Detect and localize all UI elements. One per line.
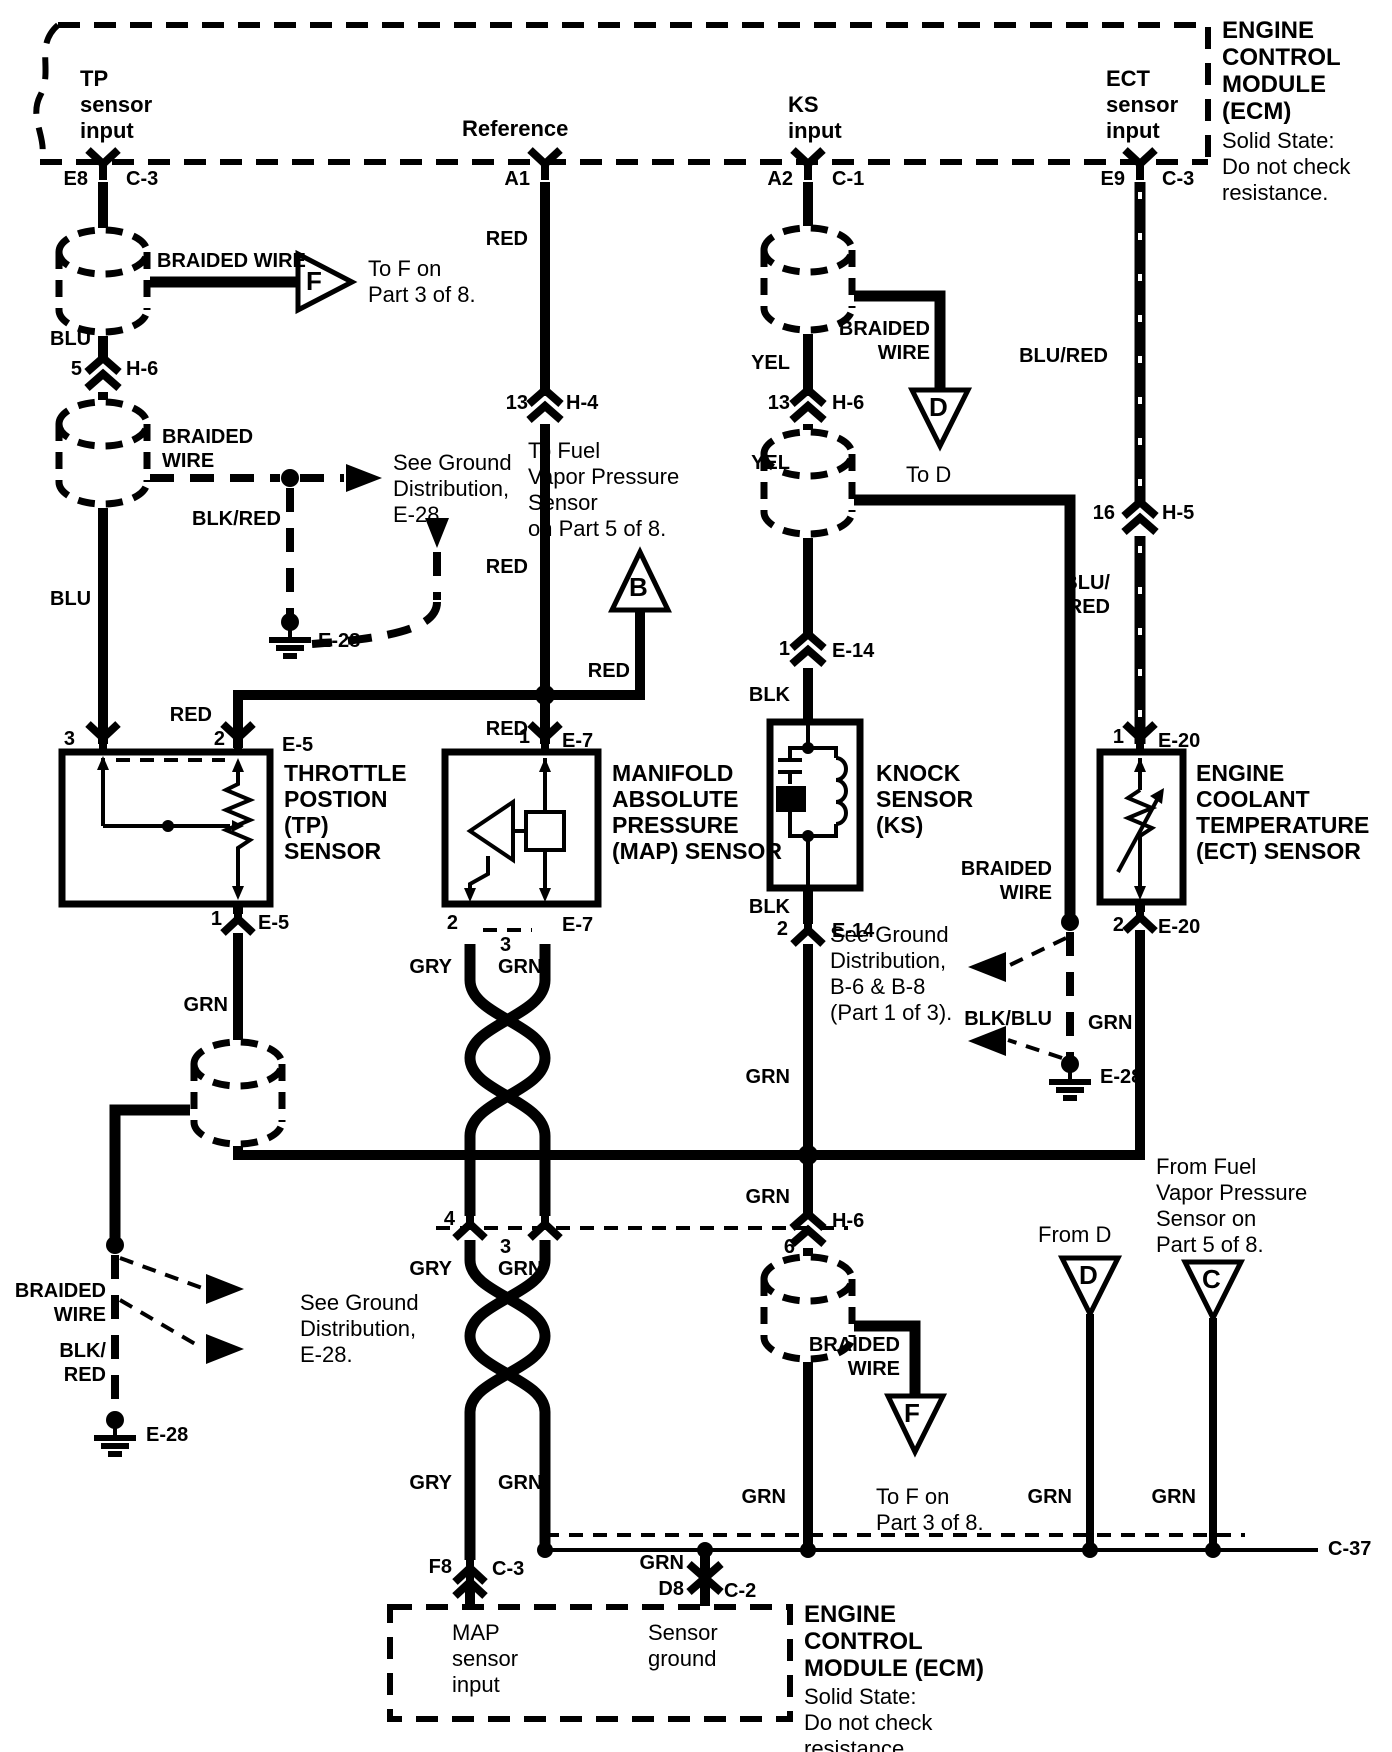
triangle-f-letter: F xyxy=(306,266,322,297)
gry-label-2: GRY xyxy=(409,1258,452,1282)
map-title: MANIFOLD ABSOLUTE PRESSURE (MAP) SENSOR xyxy=(612,760,782,864)
grn-label-9: GRN xyxy=(640,1552,684,1576)
ect-title: ENGINE COOLANT TEMPERATURE (ECT) SENSOR xyxy=(1196,760,1369,864)
grn-label-5: GRN xyxy=(498,1472,542,1496)
red-label-tp: RED xyxy=(170,704,212,728)
ks-input-label: KS input xyxy=(788,92,842,144)
to-d-note: To D xyxy=(906,462,951,488)
tp-sensor-box xyxy=(62,724,270,904)
blk-red-label-1: BLK/RED xyxy=(192,508,281,532)
e7-label-bottom: E-7 xyxy=(562,914,593,938)
ref-arrow xyxy=(206,1274,244,1304)
blk-label-1: BLK xyxy=(749,684,790,708)
reference-label: Reference xyxy=(462,116,568,142)
yel-label-1: YEL xyxy=(751,352,790,376)
e20-label-top: E-20 xyxy=(1158,730,1200,754)
ecm-note: Solid State: Do not check resistance. xyxy=(1222,128,1350,206)
e28-label-c: E-28 xyxy=(146,1424,188,1448)
ks-title: KNOCK SENSOR (KS) xyxy=(876,760,973,838)
blk-blu-label: BLK/BLU xyxy=(964,1008,1052,1032)
h5-label: H-5 xyxy=(1162,502,1194,526)
see-ground-note-1: See Ground Distribution, E-28. xyxy=(393,450,512,528)
blu-label-2: BLU xyxy=(50,588,91,612)
e28-label-b: E-28 xyxy=(1100,1066,1142,1090)
pin-e9-label: E9 xyxy=(1101,168,1125,192)
pin-2-ks-label: 2 xyxy=(777,918,788,942)
ecm-title: ENGINE CONTROL MODULE (ECM) xyxy=(1222,18,1341,126)
ref-arrow xyxy=(968,952,1006,982)
tp-input-label: TP sensor input xyxy=(80,66,152,144)
blu-red-label-1: BLU/RED xyxy=(1019,345,1108,369)
ecm-top-box xyxy=(36,25,1208,162)
pin-e8-label: E8 xyxy=(64,168,88,192)
amp-icon xyxy=(470,802,513,860)
tp-braided-drain xyxy=(94,1110,244,1454)
see-ground-note-3: See Ground Distribution, E-28. xyxy=(300,1290,419,1368)
pin-3-map-label: 3 xyxy=(500,934,511,958)
ect-input-label: ECT sensor input xyxy=(1106,66,1178,144)
conn-c1-label: C-1 xyxy=(832,168,864,192)
pin-2-tp-label: 2 xyxy=(214,728,225,752)
grn-label-7: GRN xyxy=(1028,1486,1072,1510)
blk-red-label-2: BLK/ RED xyxy=(59,1340,106,1387)
pin-a1-label: A1 xyxy=(504,168,530,192)
to-f-note-1: To F on Part 3 of 8. xyxy=(368,256,476,308)
pin-1-ks-label: 1 xyxy=(779,638,790,662)
pin-3b-label: 3 xyxy=(500,1236,511,1260)
c3-label-bottom: C-3 xyxy=(492,1558,524,1582)
blk-label-2: BLK xyxy=(749,896,790,920)
conn-c3-label: C-3 xyxy=(126,168,158,192)
e5-label-bottom: E-5 xyxy=(258,912,289,936)
gry-label-1: GRY xyxy=(409,956,452,980)
braided-wire-label-5: BRAIDED WIRE xyxy=(15,1280,106,1327)
grn-label-2: GRN xyxy=(746,1066,790,1090)
from-fuel-note: From Fuel Vapor Pressure Sensor on Part … xyxy=(1156,1154,1307,1258)
grn-bus xyxy=(233,1145,1145,1165)
to-fuel-note: To Fuel Vapor Pressure Sensor on Part 5 … xyxy=(528,438,679,542)
red-label-b: RED xyxy=(486,556,528,580)
pin-1-ect-label: 1 xyxy=(1113,726,1124,750)
pin-6-label: 6 xyxy=(784,1236,795,1260)
e14-label-top: E-14 xyxy=(832,640,874,664)
braided-wire-label-4: BRAIDED WIRE xyxy=(961,858,1052,905)
sensor-ground-drop xyxy=(689,1552,721,1606)
pin-13-label-a: 13 xyxy=(506,392,528,416)
ref-arrow xyxy=(206,1334,244,1364)
triangle-b-letter: B xyxy=(629,572,648,603)
map-input-label: MAP sensor input xyxy=(452,1620,518,1698)
braided-wire-label-1: BRAIDED WIRE xyxy=(157,250,306,274)
grn-label-6: GRN xyxy=(742,1486,786,1510)
e28-label-a: E-28 xyxy=(318,630,360,654)
triangle-f2-letter: F xyxy=(904,1398,920,1429)
h6-label-b: H-6 xyxy=(832,392,864,416)
pin-2-ect-label: 2 xyxy=(1113,914,1124,938)
braided-wire-label-2: BRAIDED WIRE xyxy=(162,426,253,473)
h6-label-c: H-6 xyxy=(832,1210,864,1234)
d8-label: D8 xyxy=(658,1578,684,1602)
pin-4-label: 4 xyxy=(444,1208,455,1232)
tp-title: THROTTLE POSTION (TP) SENSOR xyxy=(284,760,407,864)
e7-label-top: E-7 xyxy=(562,730,593,754)
pin-1-map-label: 1 xyxy=(519,726,530,750)
h4-label: H-4 xyxy=(566,392,598,416)
ecm2-note: Solid State: Do not check resistance. xyxy=(804,1684,932,1752)
ks-sensor-box xyxy=(770,722,860,888)
pin-16-label: 16 xyxy=(1093,502,1115,526)
wiring-diagram: TP sensor input Reference KS input ECT s… xyxy=(0,0,1392,1752)
gry-label-3: GRY xyxy=(409,1472,452,1496)
red-label-a: RED xyxy=(486,228,528,252)
sensor-ground-label: Sensor ground xyxy=(648,1620,718,1672)
tp-grn-wire xyxy=(194,902,282,1160)
grn-label-ect: GRN xyxy=(1088,1012,1132,1036)
grn-label-tp: GRN xyxy=(184,994,228,1018)
from-d-note: From D xyxy=(1038,1222,1111,1248)
grn-label-4: GRN xyxy=(498,1258,542,1282)
pin-f8-label: F8 xyxy=(429,1556,452,1580)
blu-red-label-2: BLU/ RED xyxy=(1063,572,1110,619)
tp-wire xyxy=(59,182,147,744)
grn-label-3: GRN xyxy=(746,1186,790,1210)
conn-c3b-label: C-3 xyxy=(1162,168,1194,192)
triangle-d2-letter: D xyxy=(1079,1260,1098,1291)
grn-label-1: GRN xyxy=(498,956,542,980)
pin-5-label: 5 xyxy=(71,358,82,382)
c2-label: C-2 xyxy=(724,1580,756,1604)
ecm-bottom-box xyxy=(390,1607,790,1719)
to-f-note-2: To F on Part 3 of 8. xyxy=(876,1484,984,1536)
red-label-branch: RED xyxy=(588,660,630,684)
pin-1-tp-label: 1 xyxy=(211,908,222,932)
c37-label: C-37 xyxy=(1328,1538,1371,1562)
braided-wire-label-6: BRAIDED WIRE xyxy=(809,1334,900,1381)
h6-label-a: H-6 xyxy=(126,358,158,382)
pin-13-label-b: 13 xyxy=(768,392,790,416)
blu-label-1: BLU xyxy=(50,328,91,352)
pin-3-tp-label: 3 xyxy=(64,728,75,752)
grn-label-8: GRN xyxy=(1152,1486,1196,1510)
ecm2-title: ENGINE CONTROL MODULE (ECM) xyxy=(804,1602,984,1683)
pin-a2-label: A2 xyxy=(767,168,793,192)
yel-label-2: YEL xyxy=(751,452,790,476)
e5-label-top: E-5 xyxy=(282,734,313,758)
triangle-c-letter: C xyxy=(1202,1264,1221,1295)
see-ground-note-2: See Ground Distribution, B-6 & B-8 (Part… xyxy=(830,922,952,1026)
braided-wire-label-3: BRAIDED WIRE xyxy=(839,318,930,365)
triangle-d-letter: D xyxy=(929,392,948,423)
ref-arrow xyxy=(346,464,382,492)
e20-label-bottom: E-20 xyxy=(1158,916,1200,940)
pin-2-map-label: 2 xyxy=(447,912,458,936)
